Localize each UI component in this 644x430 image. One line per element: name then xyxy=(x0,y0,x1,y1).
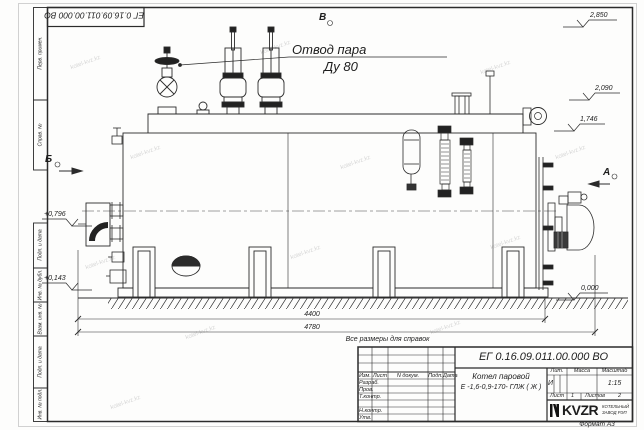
steam-outlet-valve xyxy=(155,47,179,114)
kvzr-logo-mark xyxy=(550,404,559,417)
lit-header: Лит. xyxy=(547,369,567,375)
elevation-0000: 0,000 xyxy=(581,285,599,292)
sheet-value: 1 xyxy=(571,394,574,400)
lit-value: И xyxy=(547,380,554,387)
row-utv: Утв. xyxy=(359,416,372,422)
frame-col-vzam-inv: Взам. инв. № xyxy=(38,304,43,335)
burner-unit xyxy=(548,192,594,251)
frame-col-inv-dubl: Инв. № дубл. xyxy=(38,270,43,301)
frame-col-sprav: Справ. № xyxy=(38,124,43,147)
col-data: Дата xyxy=(443,374,455,380)
callout-dn80: Ду 80 xyxy=(324,60,358,73)
row-nkontr: Н.контр. xyxy=(359,409,382,415)
safety-valve xyxy=(220,27,246,114)
drum-fittings xyxy=(452,71,494,114)
callout-steam-outlet: Отвод пара xyxy=(292,43,366,56)
col-list: Лист xyxy=(372,374,388,380)
title-doc-number: ЕГ 0.16.09.011.00.000 ВО xyxy=(455,352,632,363)
support-legs xyxy=(133,247,524,297)
rear-wall xyxy=(539,157,553,290)
feed-unit xyxy=(78,203,110,246)
elevation-2850: 2,850 xyxy=(590,12,608,19)
frame-col-perv-primen: Перв. примен. xyxy=(38,36,43,69)
safety-valve xyxy=(258,27,284,114)
dim-4400: 4400 xyxy=(295,311,329,318)
row-prov: Пров. xyxy=(359,388,374,394)
title-product-type: Е -1,6-0,9-170- ГЛЖ ( Ж ) xyxy=(455,384,547,391)
company-name-line1: КОТЕЛЬНЫЙ xyxy=(602,405,629,409)
elevation-2090: 2,090 xyxy=(595,85,613,92)
manhole xyxy=(172,256,200,276)
eyebolt xyxy=(197,102,209,114)
col-podp: Подп. xyxy=(428,374,443,380)
sheet-label: Лист xyxy=(550,394,564,400)
kvzr-logo-text: KVZR xyxy=(562,403,598,417)
col-ndokum: N докум. xyxy=(388,374,428,380)
water-level-gauge xyxy=(438,126,473,197)
frame-col-podp-data2: Подп. и дата xyxy=(38,346,43,377)
row-razrab: Разраб. xyxy=(359,381,379,387)
technical-drawing-canvas xyxy=(0,0,644,430)
frame-col-inv-podl: Инв. № подл. xyxy=(38,388,43,419)
view-label-b: Б xyxy=(45,155,52,165)
dim-4780: 4780 xyxy=(295,324,329,331)
drawing-sheet: kotel-kvz.kz kotel-kvz.kz kotel-kvz.kz k… xyxy=(0,0,644,430)
massa-header: Масса xyxy=(567,369,597,375)
callout-leader xyxy=(179,57,447,66)
elevation-0143: +0,143 xyxy=(44,275,66,282)
company-name-line2: ЗАВОД РЭП xyxy=(602,411,627,415)
ground-line xyxy=(78,298,628,309)
elevation-1746: 1,746 xyxy=(580,116,598,123)
masshtab-value: 1:15 xyxy=(597,380,632,387)
separator-vessel xyxy=(403,130,420,190)
row-tkontr: Т.контр. xyxy=(359,395,381,401)
reference-note: Все размеры для справок xyxy=(340,336,435,343)
title-product-name: Котел паровой xyxy=(455,373,547,381)
elevation-0796: +0,796 xyxy=(44,211,66,218)
format-note: Формат А3 xyxy=(572,422,622,429)
sheets-value: 2 xyxy=(618,394,621,400)
sheets-label: Листов xyxy=(585,394,605,400)
masshtab-header: Масштаб xyxy=(597,369,632,375)
view-label-a: А xyxy=(603,168,610,178)
view-label-v: В xyxy=(319,13,326,23)
col-izm: Изм. xyxy=(358,374,372,380)
rotated-doc-number: ЕГ 0.16.09.011.00.000 ВО xyxy=(48,11,144,20)
frame-col-podp-data: Подп. и дата xyxy=(38,229,43,260)
